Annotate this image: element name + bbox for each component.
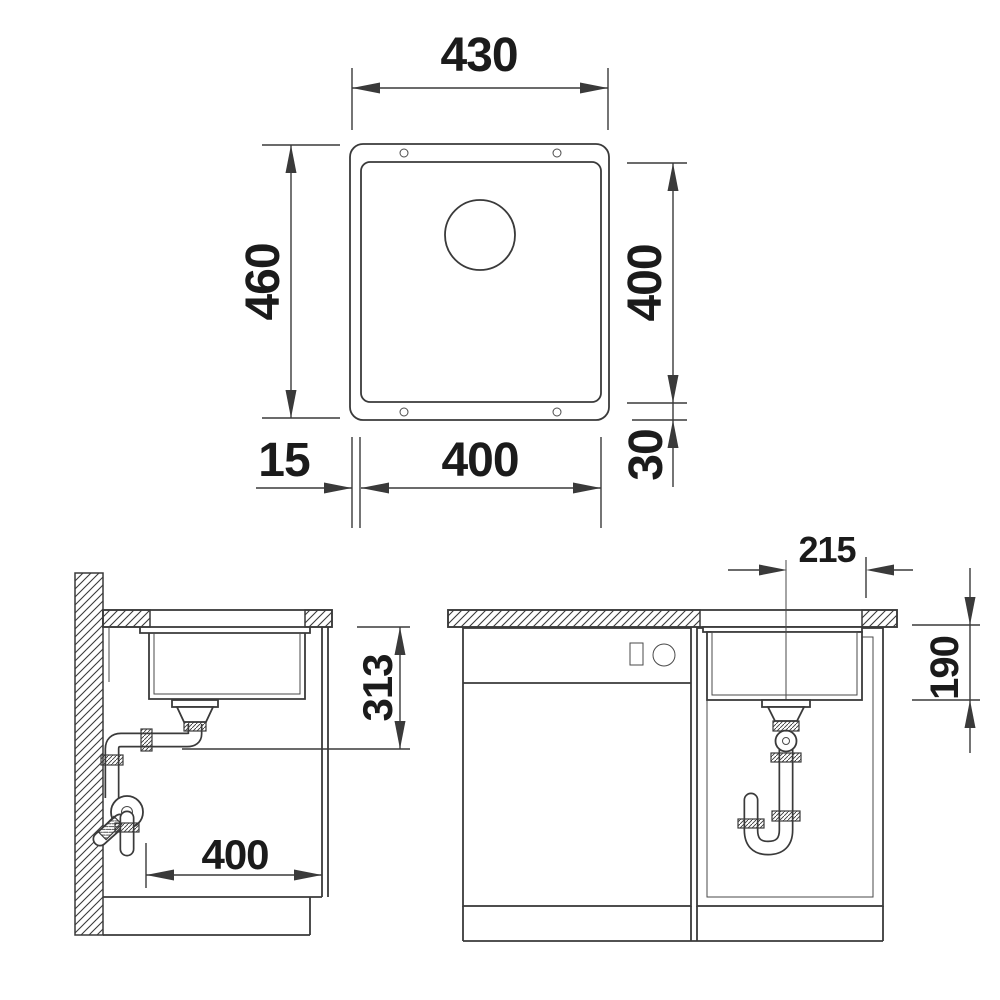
dim-label-bowl-height: 400	[622, 244, 670, 321]
dim-label-overall-width: 430	[440, 32, 517, 80]
drain-hole	[445, 200, 515, 270]
strainer-flange	[172, 700, 218, 707]
sink-technical-drawing: 430 460 400 30 15 400 313 400 215 190	[0, 0, 1000, 1000]
dim-label-bowl-depth: 190	[925, 636, 965, 700]
wall-hatch	[75, 573, 103, 935]
bowl-front	[707, 632, 862, 700]
front-elevation-view	[448, 557, 980, 941]
socket-round-symbol	[653, 644, 675, 666]
mounting-holes	[400, 149, 561, 416]
dim-label-overall-height: 460	[240, 243, 288, 320]
dim-label-rim-bottom: 30	[623, 429, 671, 480]
dim-label-base-width: 400	[201, 834, 268, 876]
dim-label-rim-left: 15	[258, 437, 309, 485]
plinth	[463, 906, 883, 941]
side-section-view	[75, 573, 410, 935]
technical-drawing-canvas	[0, 0, 1000, 1000]
socket-symbol	[630, 643, 643, 665]
dim-label-center-to-edge: 215	[798, 532, 855, 568]
left-cabinet	[463, 628, 691, 906]
dim-label-bowl-width: 400	[441, 437, 518, 485]
dim-label-drain-height: 313	[357, 654, 399, 721]
